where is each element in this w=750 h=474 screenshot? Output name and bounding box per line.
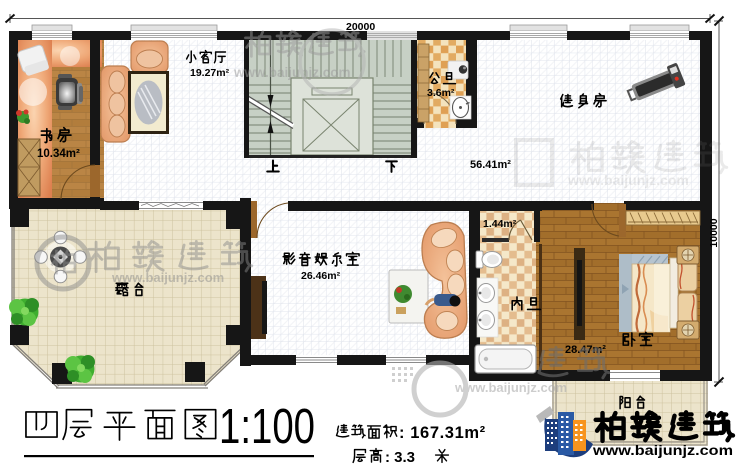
- svg-text:19.27m²: 19.27m²: [190, 67, 230, 79]
- svg-text:: 167.31m²: : 167.31m²: [399, 424, 486, 442]
- svg-text:56.41m²: 56.41m²: [470, 159, 511, 171]
- svg-text:www.baijunjz.com: www.baijunjz.com: [592, 443, 733, 458]
- svg-text:10.34m²: 10.34m²: [37, 148, 80, 160]
- svg-text:1:100: 1:100: [219, 400, 315, 454]
- svg-text:www.baijunjz.com: www.baijunjz.com: [454, 380, 567, 395]
- svg-text:www.baijunjz.com: www.baijunjz.com: [567, 172, 689, 188]
- svg-text:www.baijunjz.com: www.baijunjz.com: [111, 270, 224, 285]
- svg-text:26.46m²: 26.46m²: [301, 270, 341, 282]
- svg-text:20000: 20000: [346, 21, 375, 33]
- svg-text:10000: 10000: [708, 218, 720, 247]
- svg-text:3.6m²: 3.6m²: [427, 87, 455, 99]
- svg-text:www.baijunjz.com: www.baijunjz.com: [233, 65, 351, 80]
- svg-text:1.44m²: 1.44m²: [483, 218, 517, 230]
- svg-text:: 3.3: : 3.3: [385, 449, 415, 466]
